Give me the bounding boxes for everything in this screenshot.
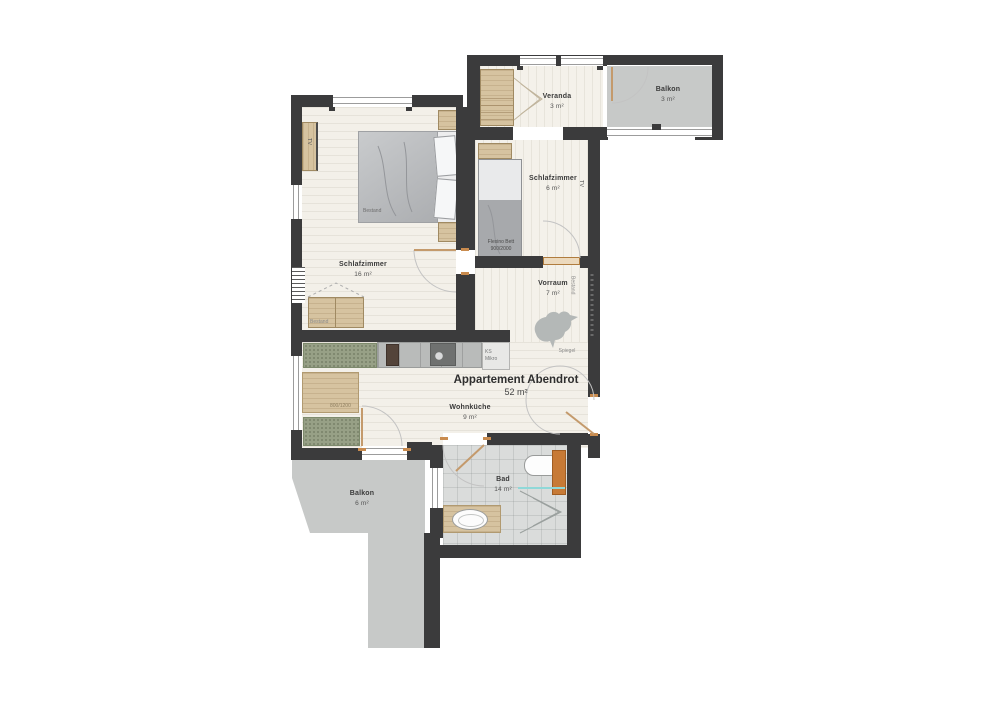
room-name: Schlafzimmer [529, 175, 577, 182]
room-area: 3 m² [529, 102, 585, 111]
plan-annotations [0, 0, 1000, 707]
bird-icon [535, 311, 578, 348]
room-area: 6 m² [334, 499, 390, 508]
room-area: 9 m² [440, 413, 500, 422]
room-name: Schlafzimmer [339, 261, 387, 268]
roof-dashes [308, 283, 364, 297]
bed-bestand-label: Bestand [363, 208, 381, 215]
table-dimension-label: 800/1200 [330, 403, 351, 410]
room-area: 14 m² [480, 485, 526, 494]
room-area: 3 m² [640, 95, 696, 104]
room-label-wohnkueche: Wohnküche 9 m² [440, 403, 500, 422]
apartment-name: Appartement Abendrot [450, 374, 582, 386]
flexino-bed-label: Flexino Bett 900/2000 [479, 239, 523, 252]
room-label-balkon-unten: Balkon 6 m² [334, 489, 390, 508]
apartment-title: Appartement Abendrot 52 m² [450, 374, 582, 397]
spiegel-label: Spiegel [550, 348, 584, 355]
room-name: Balkon [350, 490, 375, 497]
wardrobe-bestand-label: Bestand [310, 319, 328, 326]
room-label-veranda: Veranda 3 m² [529, 92, 585, 111]
room-name: Wohnküche [449, 404, 490, 411]
vorraum-bestand-label: Bestand [569, 276, 576, 294]
room-name: Bad [496, 476, 510, 483]
room-name: Vorraum [538, 280, 568, 287]
tv-cabinet-label: TV [305, 138, 312, 145]
room-name: Balkon [656, 86, 681, 93]
duvet-fold-lines [378, 142, 500, 254]
shower-symbol [518, 488, 565, 533]
floorplan: KS Mikro [0, 0, 1000, 707]
flexino-line2: 900/2000 [479, 246, 523, 253]
tv-wall-label: TV [577, 180, 584, 187]
room-name: Veranda [543, 93, 572, 100]
apartment-area: 52 m² [450, 387, 582, 397]
room-label-balkon-oben: Balkon 3 m² [640, 85, 696, 104]
room-label-bad: Bad 14 m² [480, 475, 526, 494]
room-label-schlafzimmer-gross: Schlafzimmer 16 m² [318, 260, 408, 279]
room-area: 16 m² [318, 270, 408, 279]
